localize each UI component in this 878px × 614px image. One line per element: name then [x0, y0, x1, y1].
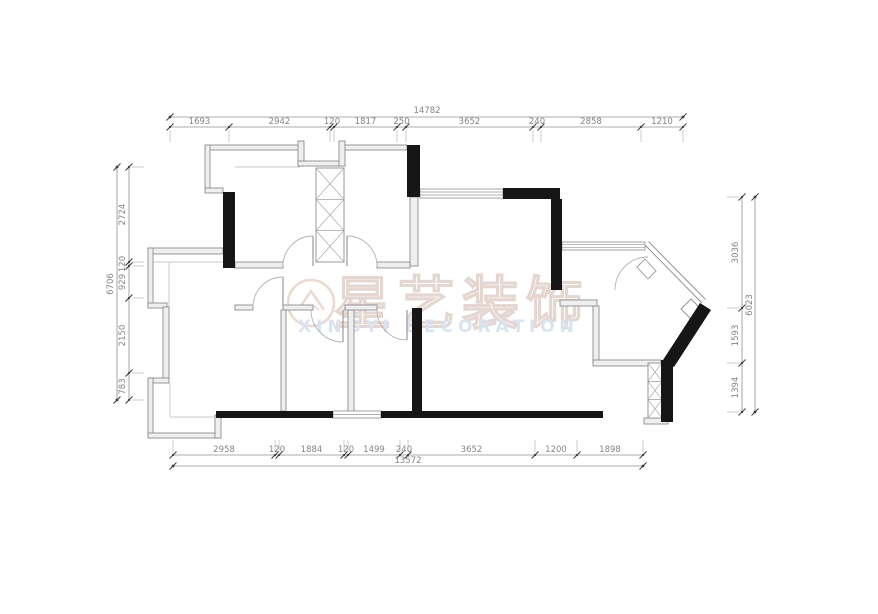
dimension-label: 1394 [731, 377, 741, 399]
dimension-label: 250 [393, 117, 409, 127]
dimension-label: 929 [118, 274, 128, 290]
dimension-label: 1898 [599, 445, 621, 455]
dimension-label: 120 [338, 445, 354, 455]
window [420, 189, 503, 198]
dimension-label: 1499 [363, 445, 385, 455]
dimension-label: 1210 [651, 117, 673, 127]
dimension-label: 1693 [189, 117, 211, 127]
thin-wall [205, 145, 210, 192]
black-wall [223, 192, 235, 268]
floorplan-canvas: 星艺装饰 XINGYI DECORATION 14782169329421201… [0, 0, 878, 614]
dimension-label: 120 [269, 445, 285, 455]
dimension-label: 2724 [118, 204, 128, 226]
door-swing-arc [377, 310, 407, 340]
black-walls-layer [216, 145, 711, 422]
thin-walls-layer [148, 141, 706, 438]
windows-layer [333, 189, 645, 418]
thin-wall [148, 248, 223, 254]
dimension-label: 14782 [413, 106, 440, 116]
dimension-label: 240 [529, 117, 545, 127]
thin-wall [593, 306, 599, 363]
dimension-label: 240 [396, 445, 412, 455]
thin-wall [163, 307, 169, 380]
black-wall [412, 308, 422, 411]
dimension-label: 120 [324, 117, 340, 127]
thin-wall [339, 141, 345, 166]
thin-wall [345, 145, 407, 150]
thin-wall [235, 305, 253, 310]
door-swing-arc [347, 236, 377, 266]
thin-wall [345, 305, 377, 310]
thin-wall [410, 197, 418, 266]
dimension-label: 3652 [461, 445, 483, 455]
thin-wall [235, 262, 283, 268]
floorplan-drawing: 1478216932942120181725036522402858121029… [0, 0, 878, 614]
black-wall [661, 360, 673, 422]
dimension-label: 2858 [580, 117, 602, 127]
thin-wall [205, 145, 300, 150]
dimension-label: 6706 [106, 273, 116, 295]
shafts-layer [316, 168, 662, 418]
window [562, 242, 645, 250]
black-wall [216, 411, 333, 418]
thin-wall [205, 188, 223, 193]
dimension-label: 3036 [731, 242, 741, 264]
black-wall [503, 188, 560, 199]
door-swing-arc [283, 236, 313, 266]
thin-wall [148, 433, 220, 438]
dimension-label: 2942 [269, 117, 291, 127]
dimension-label: 783 [118, 378, 128, 394]
thin-wall [560, 300, 597, 306]
door-leaf [637, 259, 656, 279]
dimension-label: 1593 [731, 325, 741, 347]
black-wall [551, 199, 562, 290]
door-swing-arc [311, 310, 343, 342]
dimension-label: 1884 [301, 445, 323, 455]
black-wall [381, 411, 603, 418]
thin-wall [148, 248, 153, 307]
dimension-label: 13572 [394, 456, 421, 466]
dimension-label: 1817 [355, 117, 377, 127]
dimension-label: 3652 [459, 117, 481, 127]
black-wall [407, 145, 420, 197]
door-swing-arc [253, 277, 283, 307]
thin-wall [148, 378, 153, 438]
thin-wall [298, 161, 345, 166]
thin-wall [348, 310, 354, 411]
dimension-label: 2150 [118, 325, 128, 347]
thin-wall [377, 262, 410, 268]
thin-wall [281, 310, 286, 411]
dimension-label: 6023 [745, 294, 755, 316]
dimension-label: 120 [118, 256, 128, 272]
dimension-label: 2958 [213, 445, 235, 455]
thin-wall [215, 415, 221, 438]
dimension-label: 1200 [545, 445, 567, 455]
thin-wall [283, 305, 313, 310]
